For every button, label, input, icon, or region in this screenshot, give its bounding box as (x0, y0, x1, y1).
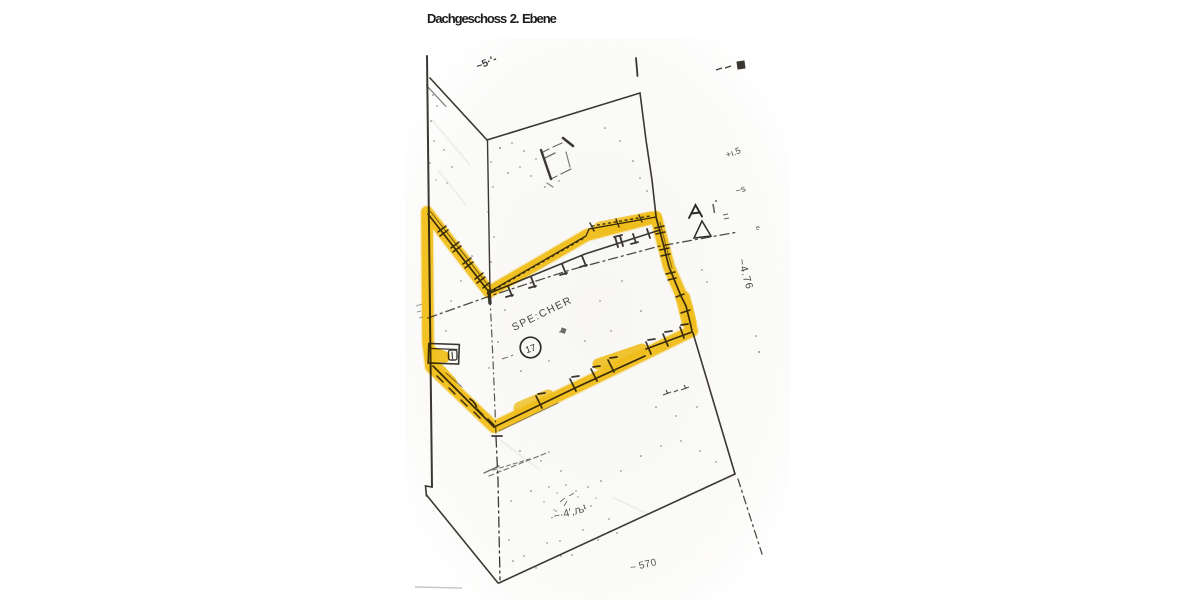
svg-text:е: е (756, 225, 760, 232)
